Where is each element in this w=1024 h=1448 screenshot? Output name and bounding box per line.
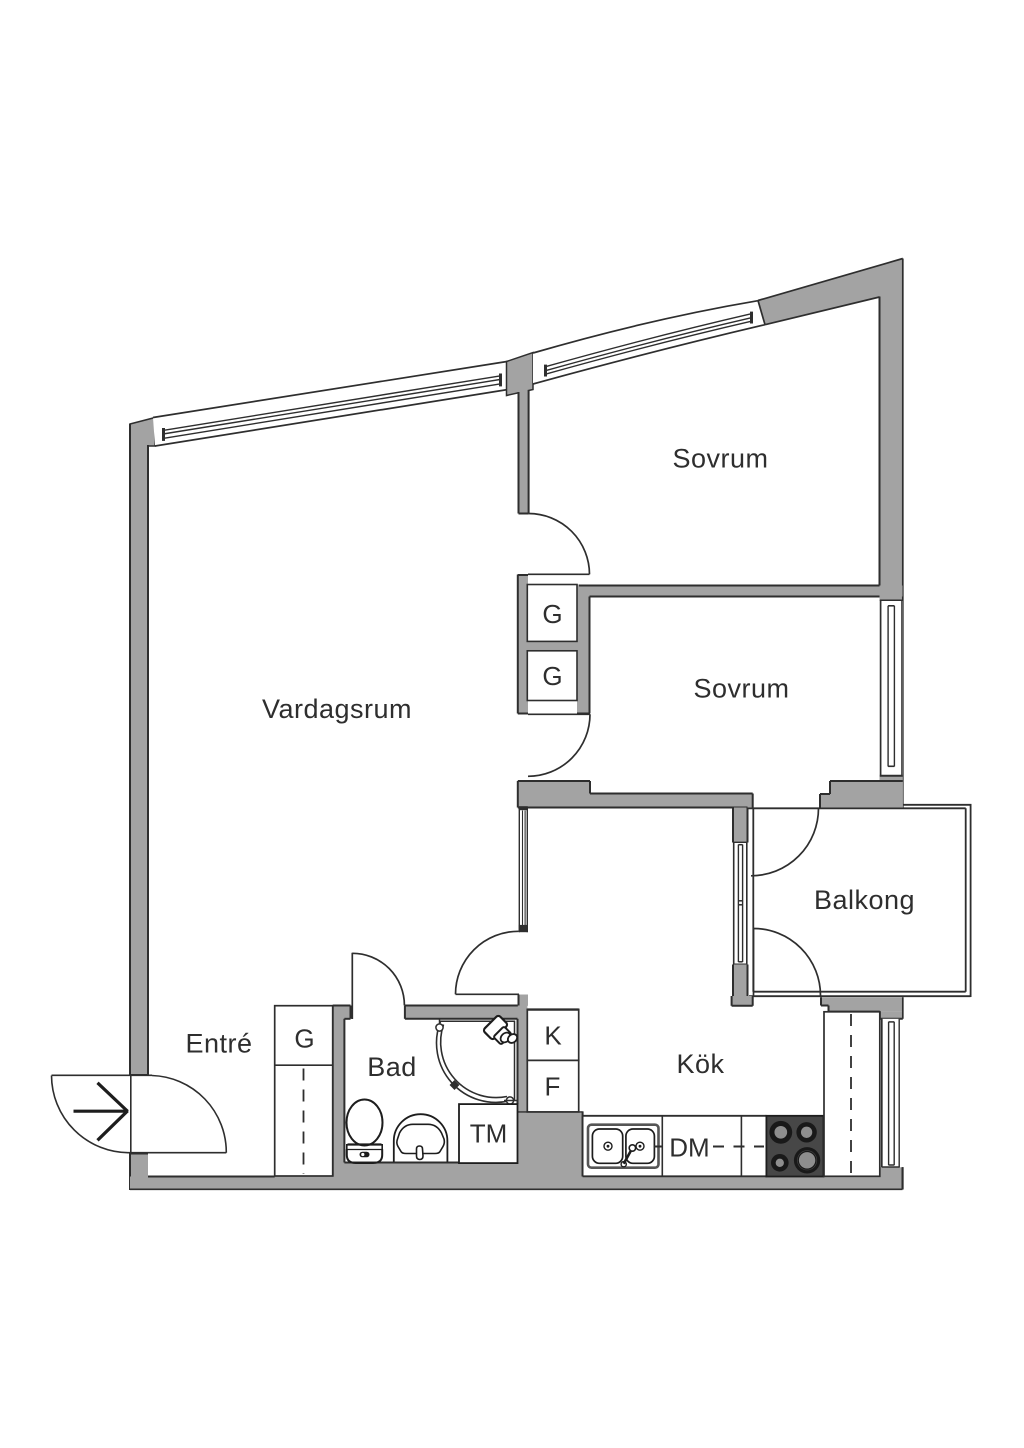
svg-text:Sovrum: Sovrum <box>693 674 789 704</box>
svg-text:Bad: Bad <box>367 1052 417 1082</box>
svg-text:F: F <box>545 1072 561 1102</box>
svg-text:Kök: Kök <box>676 1049 724 1079</box>
svg-text:G: G <box>542 599 562 629</box>
svg-text:Entré: Entré <box>185 1029 252 1059</box>
svg-text:Balkong: Balkong <box>814 885 915 915</box>
svg-text:Vardagsrum: Vardagsrum <box>262 694 412 724</box>
svg-text:Sovrum: Sovrum <box>672 444 768 474</box>
svg-text:G: G <box>542 661 562 691</box>
svg-text:K: K <box>544 1021 562 1051</box>
svg-text:DM: DM <box>669 1133 709 1163</box>
svg-text:TM: TM <box>470 1119 508 1149</box>
svg-text:G: G <box>294 1024 314 1054</box>
